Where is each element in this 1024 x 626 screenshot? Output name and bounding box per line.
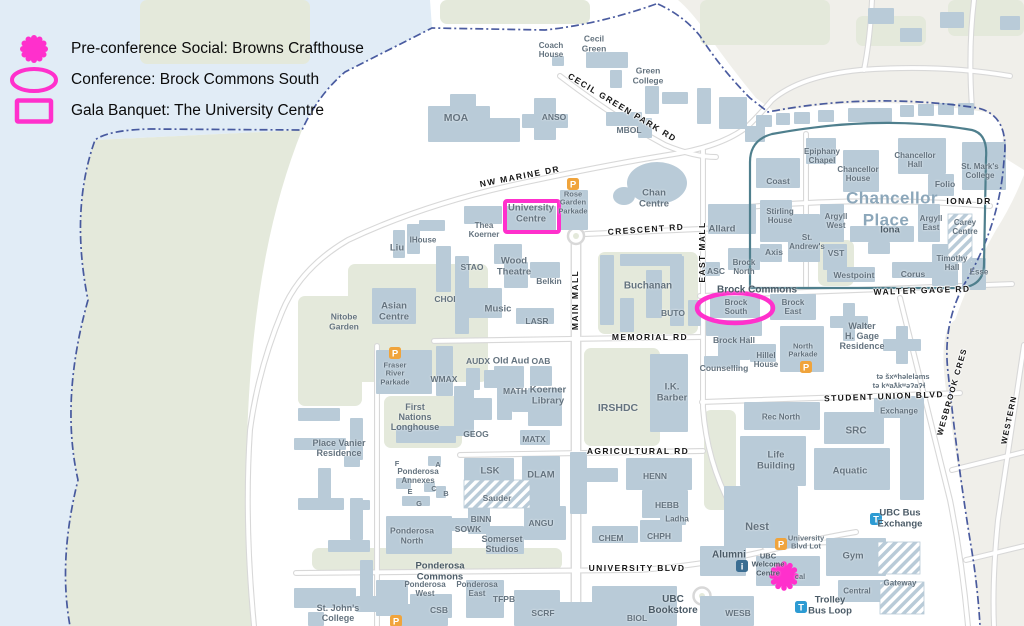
building-footprint (806, 138, 836, 164)
building-footprint (372, 288, 416, 324)
building-footprint (724, 486, 798, 548)
building-footprint (455, 256, 469, 334)
building-footprint (402, 496, 430, 506)
legend-label: Pre-conference Social: Browns Crafthouse (71, 40, 364, 58)
building-footprint (350, 418, 363, 460)
building-footprint (436, 486, 446, 498)
transit-icon: T (795, 601, 807, 613)
shoreline-green (66, 130, 303, 626)
building-footprint (898, 138, 946, 174)
building-footprint (428, 456, 441, 466)
building-footprint (360, 560, 373, 600)
legend-item-asterisk: Pre-conference Social: Browns Crafthouse (10, 33, 364, 64)
building-footprint (428, 106, 490, 142)
roundabout-center (573, 233, 579, 239)
building-footprint (940, 12, 964, 28)
building-footprint (592, 586, 677, 626)
campus-map: PPPPPTTi NW MARINE DRCECIL GREEN PARK RD… (0, 0, 1024, 626)
building-footprint (530, 262, 560, 278)
green-area (440, 0, 590, 24)
building-footprint (520, 430, 550, 445)
building-footprint (468, 398, 492, 420)
building-footprint (638, 118, 652, 138)
building-footprint (466, 288, 502, 318)
legend-asterisk-icon (10, 34, 58, 64)
building-footprint (486, 526, 524, 554)
building-footprint (606, 112, 642, 126)
building-footprint (407, 224, 420, 254)
building-footprint (600, 255, 614, 325)
building-footprint (900, 28, 922, 42)
building-footprint (376, 350, 432, 394)
parking-icon: P (389, 347, 401, 359)
building-footprint (670, 256, 684, 326)
building-footprint (308, 612, 324, 626)
building-footprint (586, 52, 628, 68)
building-footprint (918, 104, 934, 116)
building-footprint (645, 86, 659, 114)
building-footprint (826, 538, 886, 576)
building-footprint (848, 108, 892, 122)
building-footprint (494, 244, 522, 264)
building-footprint (424, 482, 435, 492)
building-footprint (522, 114, 568, 128)
green-area (584, 348, 660, 446)
building-footprint (450, 94, 476, 108)
building-footprint (626, 458, 692, 490)
parking-icon: P (775, 538, 787, 550)
legend-label: Conference: Brock Commons South (71, 71, 319, 89)
building-footprint (850, 226, 914, 242)
building-footprint (646, 270, 662, 318)
building-footprint (512, 390, 529, 412)
building-footprint (843, 150, 879, 192)
building-footprint (719, 97, 747, 129)
building-footprint (814, 448, 890, 490)
building-footprint (704, 356, 740, 368)
building-footprint (830, 316, 868, 328)
building-footprint (524, 506, 566, 540)
building-footprint (592, 526, 638, 543)
svg-text:T: T (798, 602, 804, 613)
building-footprint (488, 118, 520, 142)
building-footprint (586, 468, 618, 482)
svg-text:P: P (570, 179, 577, 190)
building-footprint (613, 187, 635, 205)
building-footprint (464, 458, 514, 483)
building-footprint (928, 174, 954, 196)
legend-item-square: Gala Banquet: The University Centre (10, 95, 364, 126)
building-footprint (328, 540, 370, 552)
building-footprint (776, 113, 790, 125)
building-footprint (516, 308, 554, 324)
parking-icon: P (390, 615, 402, 626)
building-footprint (530, 366, 552, 386)
transit-icon: T (870, 513, 882, 525)
building-footprint (466, 580, 504, 618)
building-footprint (298, 498, 344, 510)
building-footprint (958, 103, 974, 115)
building-footprint (396, 478, 411, 489)
building-footprint (900, 396, 924, 500)
green-area (700, 0, 830, 45)
building-footprint (294, 438, 346, 450)
building-footprint (506, 206, 556, 232)
building-footprint (770, 294, 816, 320)
building-footprint (700, 596, 754, 626)
construction-site-hatched (464, 480, 530, 508)
building-footprint (708, 204, 756, 234)
construction-site-hatched (880, 582, 924, 614)
svg-text:P: P (778, 539, 785, 550)
building-footprint (710, 296, 760, 318)
legend-ellipse-icon (10, 65, 58, 95)
building-footprint (393, 230, 405, 258)
legend-square-icon (10, 96, 58, 126)
building-footprint (552, 56, 564, 66)
building-footprint (745, 126, 765, 142)
building-footprint (396, 426, 456, 443)
building-footprint (386, 516, 452, 554)
building-footprint (650, 354, 688, 432)
building-footprint (962, 142, 1006, 190)
building-footprint (820, 204, 844, 242)
building-footprint (868, 242, 890, 254)
building-footprint (750, 344, 776, 362)
building-footprint (728, 248, 760, 270)
building-footprint (827, 267, 875, 282)
building-footprint (528, 388, 562, 426)
building-footprint (560, 190, 588, 230)
building-footprint (892, 262, 934, 278)
building-footprint (662, 92, 688, 104)
building-footprint (358, 500, 370, 510)
building-footprint (794, 112, 810, 124)
building-footprint (610, 70, 622, 88)
building-footprint (883, 339, 921, 351)
svg-text:i: i (741, 561, 744, 572)
building-footprint (552, 602, 596, 626)
building-footprint (294, 588, 356, 608)
building-footprint (788, 214, 820, 262)
legend-label: Gala Banquet: The University Centre (71, 102, 324, 120)
building-footprint (400, 604, 448, 626)
legend: Pre-conference Social: Browns Crafthouse… (10, 33, 364, 126)
building-footprint (818, 110, 834, 122)
building-footprint (1000, 16, 1020, 30)
building-footprint (697, 88, 711, 124)
building-footprint (760, 200, 792, 242)
building-footprint (497, 384, 512, 420)
building-footprint (627, 162, 687, 204)
parking-icon: P (800, 361, 812, 373)
building-footprint (760, 244, 782, 262)
building-footprint (756, 115, 772, 127)
legend-item-ellipse: Conference: Brock Commons South (10, 64, 364, 95)
building-footprint (868, 8, 894, 24)
building-footprint (900, 105, 914, 117)
building-footprint (344, 456, 360, 467)
building-footprint (918, 204, 940, 242)
parking-icon: P (567, 178, 579, 190)
svg-text:P: P (393, 616, 400, 626)
building-footprint (464, 206, 502, 224)
building-footprint (823, 244, 847, 270)
construction-site-hatched (878, 542, 920, 574)
info-icon: i (736, 560, 748, 572)
construction-site-hatched (948, 214, 972, 262)
building-footprint (702, 262, 720, 276)
building-footprint (756, 158, 800, 188)
building-footprint (660, 510, 686, 525)
building-footprint (419, 220, 445, 231)
building-footprint (450, 518, 470, 531)
svg-text:P: P (392, 348, 399, 359)
building-footprint (570, 452, 587, 514)
building-footprint (436, 346, 453, 396)
building-footprint (298, 408, 340, 421)
building-footprint (436, 246, 451, 292)
building-footprint (740, 436, 806, 486)
svg-text:T: T (873, 514, 879, 525)
building-footprint (620, 298, 634, 332)
svg-text:P: P (803, 362, 810, 373)
building-footprint (504, 262, 528, 288)
building-footprint (744, 402, 820, 430)
